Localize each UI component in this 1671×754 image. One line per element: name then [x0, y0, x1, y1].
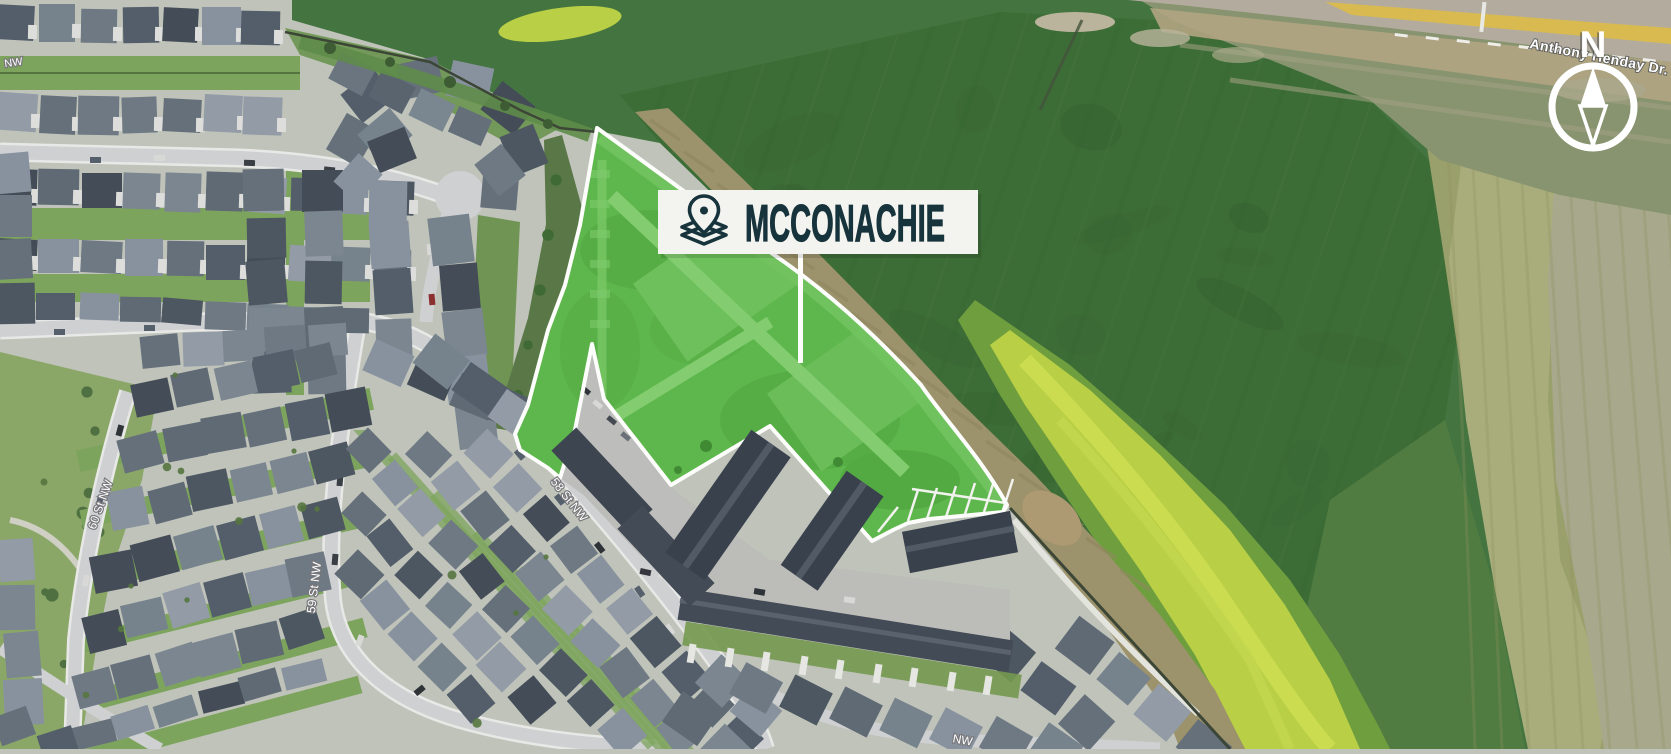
svg-text:MCCONACHIE: MCCONACHIE: [745, 195, 945, 253]
svg-text:N: N: [1580, 24, 1607, 65]
